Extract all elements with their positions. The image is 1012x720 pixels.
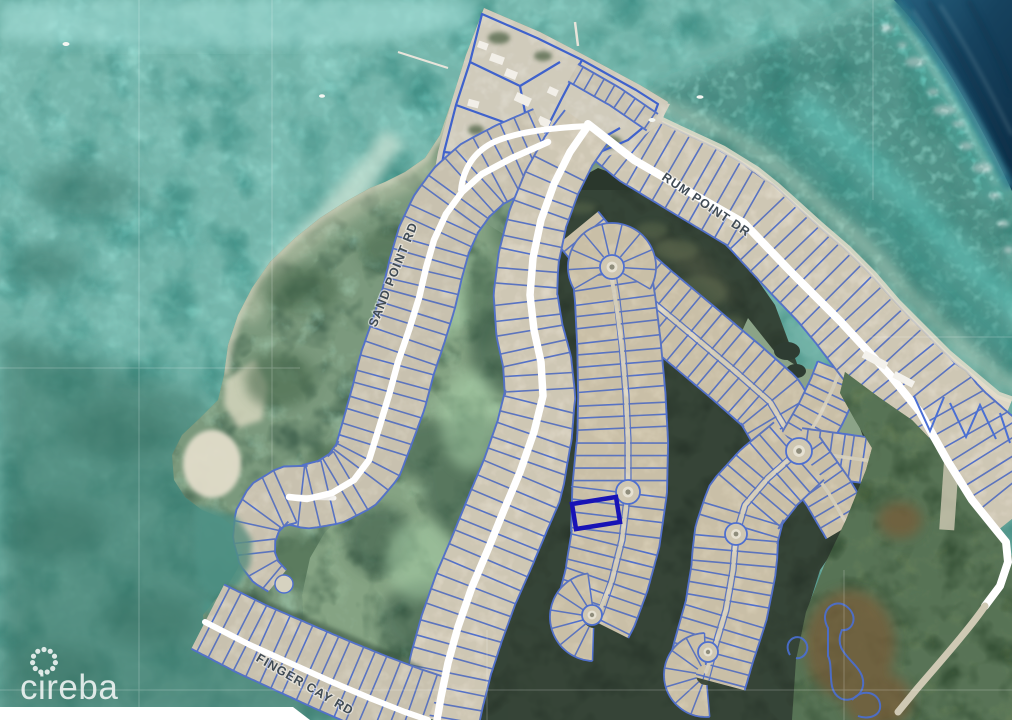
- svg-text:cireba: cireba: [20, 668, 118, 707]
